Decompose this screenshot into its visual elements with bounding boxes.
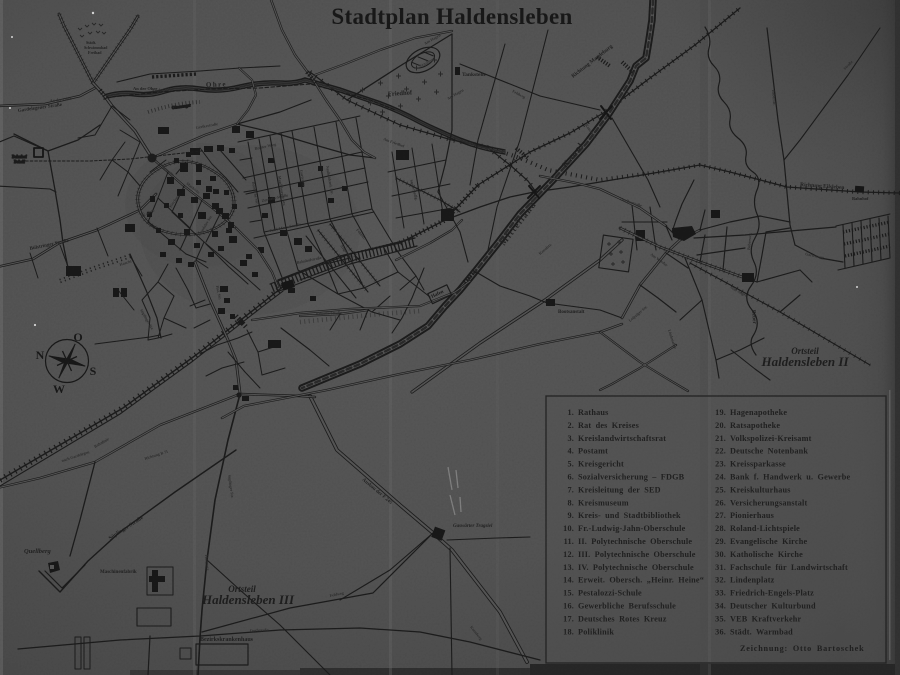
svg-text:Hagenapotheke: Hagenapotheke bbox=[730, 408, 787, 417]
svg-text:31.: 31. bbox=[715, 563, 726, 572]
svg-text:4.: 4. bbox=[567, 447, 574, 456]
svg-text:34.: 34. bbox=[715, 602, 726, 611]
svg-text:Kreismuseum: Kreismuseum bbox=[578, 498, 629, 507]
svg-text:28.: 28. bbox=[715, 524, 726, 533]
svg-text:Pionierhaus: Pionierhaus bbox=[730, 511, 774, 520]
svg-text:21.: 21. bbox=[715, 434, 726, 443]
svg-text:16.: 16. bbox=[563, 602, 574, 611]
svg-text:Evangelische Kirche: Evangelische Kirche bbox=[730, 537, 807, 546]
svg-text:29.: 29. bbox=[715, 537, 726, 546]
svg-text:1.: 1. bbox=[567, 408, 574, 417]
svg-text:Kreisgericht: Kreisgericht bbox=[578, 460, 624, 469]
svg-text:Roland-Lichtspiele: Roland-Lichtspiele bbox=[730, 524, 800, 533]
svg-text:9.: 9. bbox=[567, 511, 574, 520]
svg-text:Kreissparkasse: Kreissparkasse bbox=[730, 460, 786, 469]
svg-text:20.: 20. bbox=[715, 421, 726, 430]
svg-text:12.: 12. bbox=[563, 550, 574, 559]
svg-text:7.: 7. bbox=[567, 485, 574, 494]
svg-text:Deutsche Notenbank: Deutsche Notenbank bbox=[730, 447, 808, 456]
svg-text:Deutsches Rotes Kreuz: Deutsches Rotes Kreuz bbox=[578, 614, 667, 623]
svg-text:Rathaus: Rathaus bbox=[578, 408, 609, 417]
svg-text:Fr.-Ludwig-Jahn-Oberschule: Fr.-Ludwig-Jahn-Oberschule bbox=[578, 524, 686, 533]
svg-text:24.: 24. bbox=[715, 473, 726, 482]
svg-text:11.: 11. bbox=[564, 537, 574, 546]
svg-text:VEB Kraftverkehr: VEB Kraftverkehr bbox=[730, 614, 802, 623]
svg-text:13.: 13. bbox=[563, 563, 574, 572]
svg-text:14.: 14. bbox=[563, 576, 574, 585]
svg-text:Städt. Warmbad: Städt. Warmbad bbox=[730, 627, 793, 636]
svg-text:17.: 17. bbox=[563, 614, 574, 623]
svg-text:Kreis- und Stadtbibliothek: Kreis- und Stadtbibliothek bbox=[578, 511, 681, 520]
svg-text:Pestalozzi-Schule: Pestalozzi-Schule bbox=[578, 589, 642, 598]
svg-text:Friedrich-Engels-Platz: Friedrich-Engels-Platz bbox=[730, 589, 814, 598]
svg-text:Katholische Kirche: Katholische Kirche bbox=[730, 550, 803, 559]
svg-text:18.: 18. bbox=[563, 627, 574, 636]
svg-text:Versicherungsanstalt: Versicherungsanstalt bbox=[730, 498, 807, 507]
svg-text:II. Polytechnische Oberschule: II. Polytechnische Oberschule bbox=[578, 537, 692, 546]
svg-text:19.: 19. bbox=[715, 408, 726, 417]
svg-text:Postamt: Postamt bbox=[578, 447, 608, 456]
svg-text:Bank f. Handwerk u. Gewerbe: Bank f. Handwerk u. Gewerbe bbox=[730, 473, 850, 482]
svg-text:3.: 3. bbox=[567, 434, 574, 443]
svg-text:IV. Polytechnische Oberschule: IV. Polytechnische Oberschule bbox=[578, 563, 694, 572]
svg-text:23.: 23. bbox=[715, 460, 726, 469]
svg-text:22.: 22. bbox=[715, 447, 726, 456]
svg-text:33.: 33. bbox=[715, 589, 726, 598]
svg-text:27.: 27. bbox=[715, 511, 726, 520]
svg-text:8.: 8. bbox=[567, 498, 574, 507]
svg-text:Kreislandwirtschaftsrat: Kreislandwirtschaftsrat bbox=[578, 434, 666, 443]
svg-text:15.: 15. bbox=[563, 589, 574, 598]
svg-text:Lindenplatz: Lindenplatz bbox=[730, 576, 775, 585]
svg-text:35.: 35. bbox=[715, 614, 726, 623]
svg-text:Zeichnung: Otto Bartoschek: Zeichnung: Otto Bartoschek bbox=[740, 644, 864, 653]
svg-text:Sozialversicherung – FDGB: Sozialversicherung – FDGB bbox=[578, 473, 685, 482]
svg-text:10.: 10. bbox=[563, 524, 574, 533]
svg-text:III. Polytechnische Oberschule: III. Polytechnische Oberschule bbox=[578, 550, 696, 559]
svg-text:Ratsapotheke: Ratsapotheke bbox=[730, 421, 780, 430]
svg-text:Rat des Kreises: Rat des Kreises bbox=[578, 421, 639, 430]
svg-text:36.: 36. bbox=[715, 627, 726, 636]
svg-text:Fachschule für Landwirtschaf: Fachschule für Landwirtschaft bbox=[730, 563, 848, 572]
svg-text:30.: 30. bbox=[715, 550, 726, 559]
svg-text:5.: 5. bbox=[567, 460, 574, 469]
svg-text:Kreiskulturhaus: Kreiskulturhaus bbox=[730, 485, 791, 494]
svg-text:Erweit. Obersch. „Heinr. Heine: Erweit. Obersch. „Heinr. Heine“ bbox=[578, 576, 704, 585]
svg-text:2.: 2. bbox=[567, 421, 574, 430]
svg-text:Kreisleitung der SED: Kreisleitung der SED bbox=[578, 485, 661, 494]
svg-text:32.: 32. bbox=[715, 576, 726, 585]
svg-text:6.: 6. bbox=[567, 473, 574, 482]
svg-text:25.: 25. bbox=[715, 485, 726, 494]
svg-text:Deutscher Kulturbund: Deutscher Kulturbund bbox=[730, 602, 816, 611]
svg-text:Volkspolizei-Kreisamt: Volkspolizei-Kreisamt bbox=[730, 434, 812, 443]
svg-text:26.: 26. bbox=[715, 498, 726, 507]
svg-text:Poliklinik: Poliklinik bbox=[578, 627, 614, 636]
svg-text:Gewerbliche Berufsschule: Gewerbliche Berufsschule bbox=[578, 602, 676, 611]
